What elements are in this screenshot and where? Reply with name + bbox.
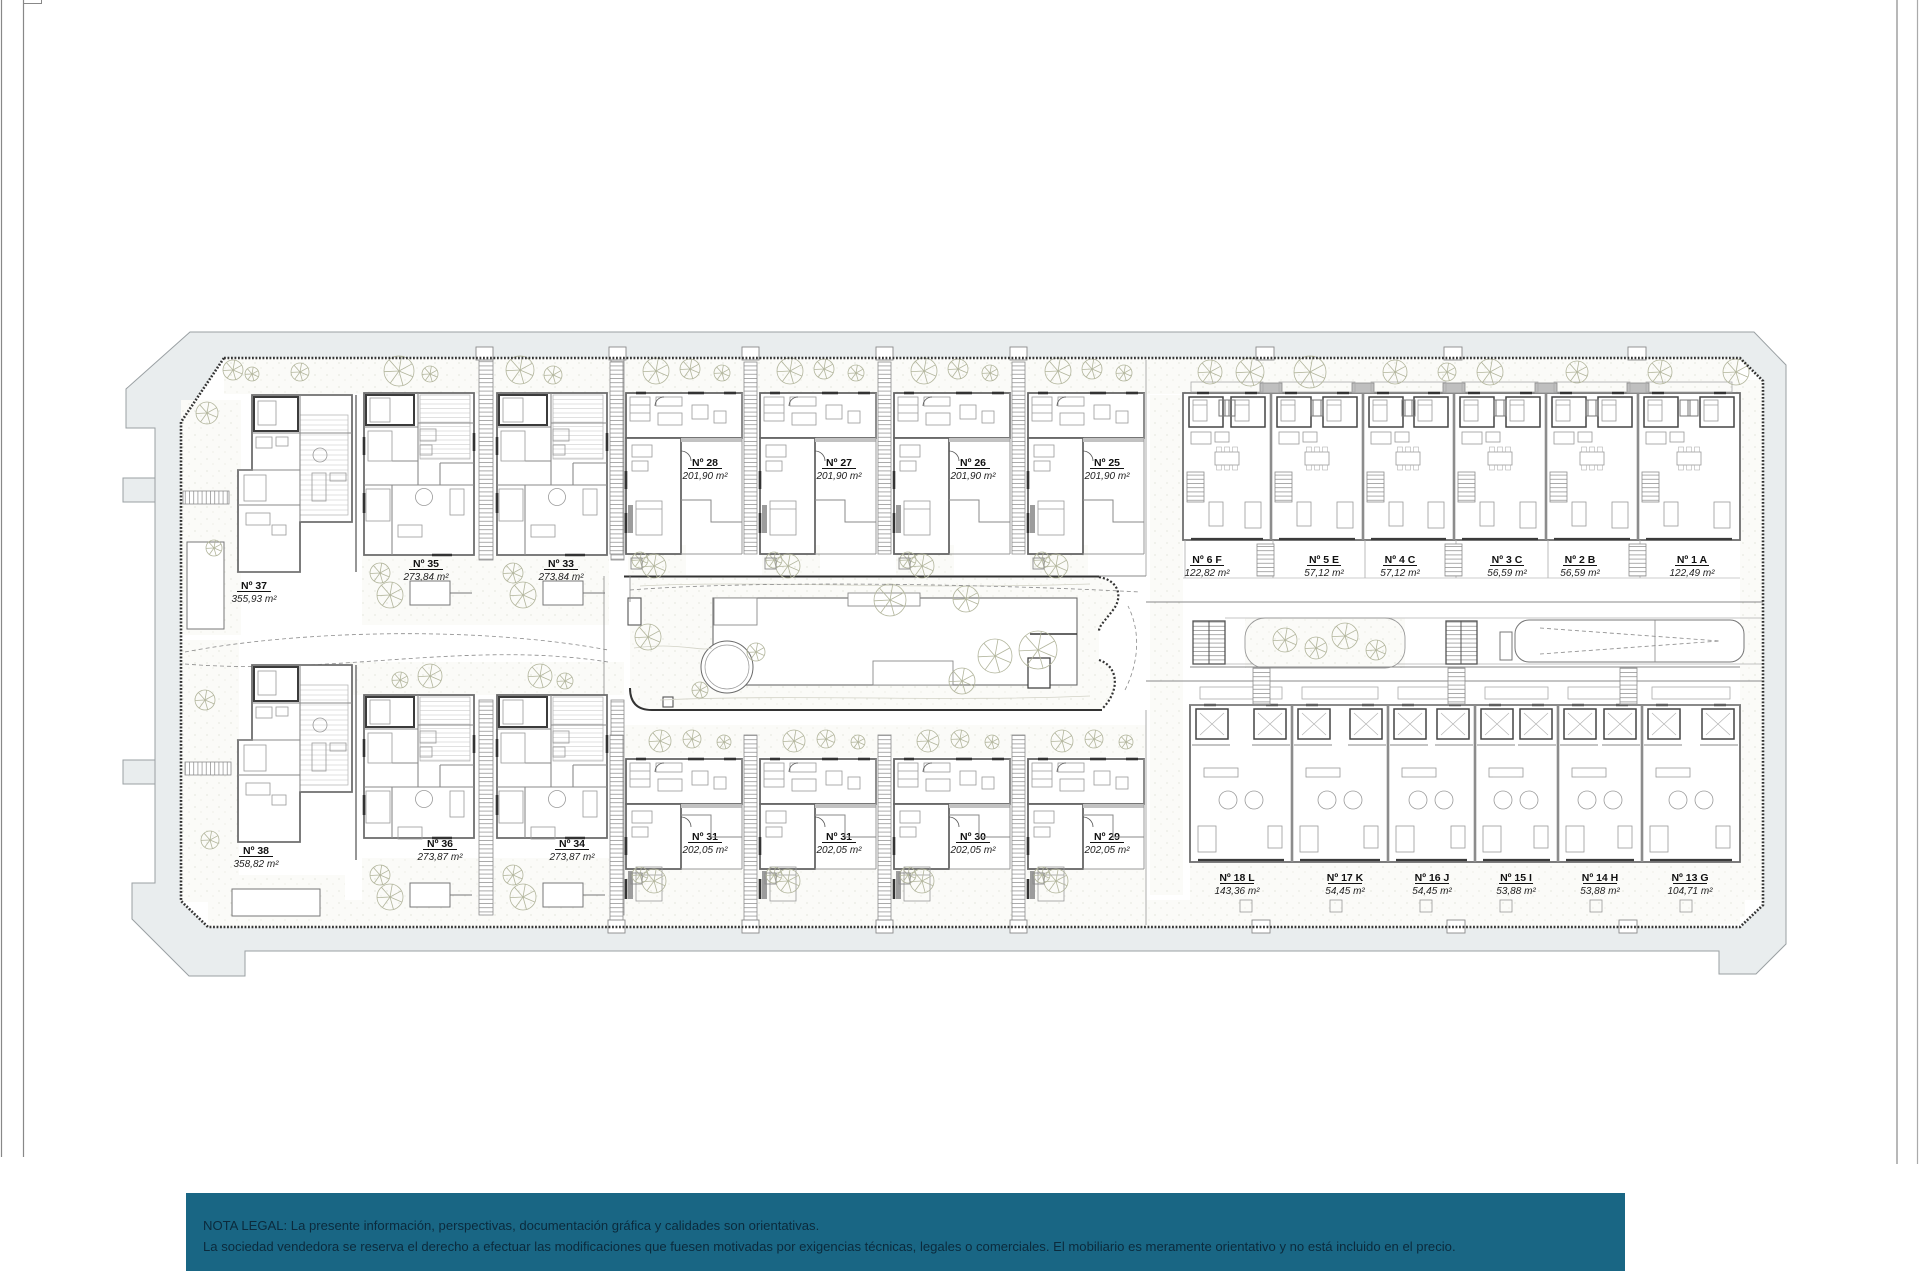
svg-text:Nº 27: Nº 27 <box>826 457 852 469</box>
svg-text:202,05 m²: 202,05 m² <box>949 845 996 856</box>
svg-text:Nº 3 C: Nº 3 C <box>1492 554 1523 566</box>
svg-text:57,12 m²: 57,12 m² <box>1380 568 1420 579</box>
svg-text:104,71 m²: 104,71 m² <box>1667 886 1713 897</box>
svg-text:273,87 m²: 273,87 m² <box>548 852 595 863</box>
svg-text:Nº 4 C: Nº 4 C <box>1385 554 1416 566</box>
svg-text:Nº 15 I: Nº 15 I <box>1500 872 1532 884</box>
svg-text:Nº 14 H: Nº 14 H <box>1582 872 1619 884</box>
svg-text:Nº 38: Nº 38 <box>243 845 269 857</box>
svg-text:Nº 25: Nº 25 <box>1094 457 1120 469</box>
svg-text:Nº 16 J: Nº 16 J <box>1415 872 1450 884</box>
svg-text:Nº 6 F: Nº 6 F <box>1192 554 1222 566</box>
svg-text:54,45 m²: 54,45 m² <box>1325 886 1365 897</box>
svg-text:La sociedad vendedora se reser: La sociedad vendedora se reserva el dere… <box>203 1239 1456 1254</box>
svg-text:53,88 m²: 53,88 m² <box>1580 886 1620 897</box>
svg-text:53,88 m²: 53,88 m² <box>1496 886 1536 897</box>
svg-text:358,82 m²: 358,82 m² <box>233 859 279 870</box>
svg-text:NOTA LEGAL: La presente inform: NOTA LEGAL: La presente información, per… <box>203 1218 819 1233</box>
svg-text:201,90 m²: 201,90 m² <box>949 471 996 482</box>
svg-text:201,90 m²: 201,90 m² <box>681 471 728 482</box>
svg-text:355,93 m²: 355,93 m² <box>231 594 277 605</box>
svg-text:Nº 34: Nº 34 <box>559 838 585 850</box>
svg-text:Nº 33: Nº 33 <box>548 558 574 570</box>
svg-text:56,59 m²: 56,59 m² <box>1487 568 1527 579</box>
svg-text:56,59 m²: 56,59 m² <box>1560 568 1600 579</box>
svg-text:202,05 m²: 202,05 m² <box>681 845 728 856</box>
svg-text:201,90 m²: 201,90 m² <box>1083 471 1130 482</box>
svg-text:54,45 m²: 54,45 m² <box>1412 886 1452 897</box>
svg-text:Nº 13 G: Nº 13 G <box>1671 872 1708 884</box>
svg-text:Nº 26: Nº 26 <box>960 457 986 469</box>
svg-text:Nº 18 L: Nº 18 L <box>1219 872 1255 884</box>
svg-text:122,82 m²: 122,82 m² <box>1184 568 1230 579</box>
svg-text:143,36 m²: 143,36 m² <box>1214 886 1260 897</box>
svg-text:122,49 m²: 122,49 m² <box>1669 568 1715 579</box>
svg-text:201,90 m²: 201,90 m² <box>815 471 862 482</box>
svg-text:Nº 5 E: Nº 5 E <box>1309 554 1339 566</box>
svg-text:273,87 m²: 273,87 m² <box>416 852 463 863</box>
svg-text:202,05 m²: 202,05 m² <box>815 845 862 856</box>
svg-text:57,12 m²: 57,12 m² <box>1304 568 1344 579</box>
svg-text:202,05 m²: 202,05 m² <box>1083 845 1130 856</box>
svg-text:Nº 1 A: Nº 1 A <box>1677 554 1708 566</box>
svg-text:Nº 37: Nº 37 <box>241 580 267 592</box>
svg-text:Nº 17 K: Nº 17 K <box>1327 872 1364 884</box>
svg-text:Nº 28: Nº 28 <box>692 457 718 469</box>
svg-text:Nº 35: Nº 35 <box>413 558 439 570</box>
svg-text:Nº 36: Nº 36 <box>427 838 453 850</box>
svg-text:Nº 2 B: Nº 2 B <box>1565 554 1596 566</box>
